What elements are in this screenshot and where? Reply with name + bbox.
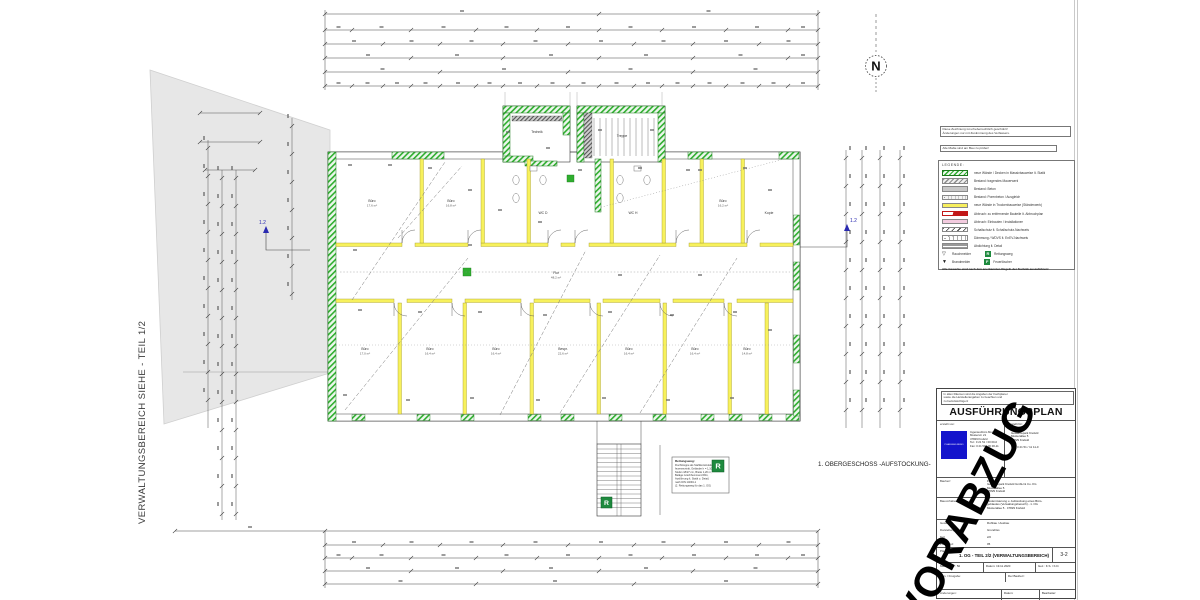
legend-row: Bestand: Beton	[942, 185, 1074, 193]
check-dimensions-note: Alle Maße sind am Bau zu prüfen!	[940, 145, 1057, 152]
legend-symbols-row: ▽ Rauchmelder RRettungsweg	[942, 250, 1074, 258]
svg-text:14,8 m²: 14,8 m²	[742, 351, 752, 355]
legend-row: Schallschutz lt. Schallschutz-Nachweis	[942, 226, 1074, 234]
legend-swatch-black-hatch	[942, 227, 968, 233]
drawing-sheet: Rettungsweg: Fluchttreppe als Stahlkonst…	[0, 0, 1200, 600]
dimension-strip-top	[323, 10, 820, 90]
left-area-note: VERWALTUNGSBEREICH SIEHE - TEIL 1/2	[137, 321, 148, 524]
svg-text:feuerverzinkt, Geländer h = 1,: feuerverzinkt, Geländer h = 1,10 m,	[675, 466, 716, 470]
interior-partitions	[336, 159, 793, 414]
svg-text:Büro: Büro	[447, 199, 454, 203]
svg-text:Büro: Büro	[625, 347, 632, 351]
svg-text:Büro: Büro	[492, 347, 499, 351]
floor-label: 1. OBERGESCHOSS -AUFSTOCKUNG-	[818, 461, 931, 468]
section-marker-right-label: 1.2	[850, 218, 857, 224]
legend-row: Bestand: Porenbeton / Ausgleich	[942, 193, 1074, 201]
svg-text:Fluchttreppe als Stahlkonstruk: Fluchttreppe als Stahlkonstruktion,	[675, 463, 715, 467]
legend-title: LEGENDE:	[942, 163, 1074, 167]
svg-text:WC H: WC H	[628, 211, 638, 215]
plan-number: 3-2	[1052, 548, 1075, 562]
svg-text:WC D: WC D	[538, 211, 548, 215]
legend-row: Abbruch: zu entfernende Bauteile lt. Abb…	[942, 209, 1074, 217]
svg-text:Kopie: Kopie	[765, 211, 774, 215]
svg-text:Beläge rutschhemmend R11,: Beläge rutschhemmend R11,	[675, 473, 709, 477]
fire-detector-icon: ▼	[942, 259, 952, 265]
legend-swatch-gray	[942, 186, 968, 192]
svg-text:R: R	[715, 462, 721, 471]
legend-row: neue Wände in Trockenbauweise (Ständerwe…	[942, 201, 1074, 209]
svg-text:17,0 m²: 17,0 m²	[360, 351, 370, 355]
dimension-strip-bottom	[173, 526, 820, 588]
svg-text:22,6 m²: 22,6 m²	[558, 351, 568, 355]
north-arrow: N	[866, 14, 887, 92]
svg-text:(2. Rettungsweg für das 1. OG): (2. Rettungsweg für das 1. OG)	[675, 483, 711, 487]
svg-text:16,8 m²: 16,8 m²	[446, 203, 456, 207]
plan-title: 1. OG - TEIL 2/2 (VERWALTUNGSBEREICH)	[959, 553, 1049, 559]
svg-text:Büro: Büro	[361, 347, 368, 351]
legend-footer: Alle Gewerke sind nach den anerkannten R…	[942, 268, 1074, 272]
tiny-dimension-text	[343, 129, 772, 400]
svg-text:R: R	[604, 500, 609, 507]
copyright-note-line2: Änderungen nur mit Zustimmung des Verfas…	[943, 132, 1069, 136]
legend-swatch-red	[942, 211, 968, 217]
smoke-detector-icon: ▽	[942, 251, 952, 257]
north-letter: N	[871, 59, 880, 74]
copyright-note: Diese Zeichnung ist urheberrechtlich ges…	[940, 126, 1071, 137]
svg-text:Büro: Büro	[426, 347, 433, 351]
svg-text:17,6 m²: 17,6 m²	[367, 203, 377, 207]
check-dimensions-line: Alle Maße sind am Bau zu prüfen!	[943, 147, 1055, 151]
svg-text:16,4 m²: 16,4 m²	[491, 351, 501, 355]
svg-text:Büro: Büro	[743, 347, 750, 351]
section-marker-left-label: 1.2	[259, 220, 266, 226]
note-box-title: Rettungsweg:	[675, 459, 695, 463]
svg-text:16,2 m²: 16,2 m²	[718, 203, 728, 207]
svg-text:Büro: Büro	[719, 199, 726, 203]
legend-swatch-stipple	[942, 195, 968, 201]
legend-swatch-lines	[942, 243, 968, 249]
architect-logo: PLANUNGS BÜRO	[941, 431, 967, 459]
changes-row: Änderungen: Datum: Bearbeiter:	[937, 589, 1075, 600]
legend-swatch-pink	[942, 219, 968, 225]
dimension-chain-right	[844, 146, 905, 428]
legend-row: Abdichtung lt. Detail	[942, 242, 1074, 250]
legend-row: neue Wände / Decken in Massivbauweise lt…	[942, 169, 1074, 177]
svg-text:16,4 m²: 16,4 m²	[624, 351, 634, 355]
svg-text:Stufen 18/27 cm, Breite 1,20 m: Stufen 18/27 cm, Breite 1,20 m,	[675, 470, 712, 474]
svg-text:Büro: Büro	[691, 347, 698, 351]
legend-row: Dämmung / WDVS lt. EnEV-Nachweis	[942, 234, 1074, 242]
fire-extinguisher-icon: F	[984, 259, 990, 265]
svg-text:Treppe: Treppe	[617, 134, 628, 138]
svg-text:nach DIN 14094-1: nach DIN 14094-1	[675, 480, 697, 484]
legend-row: Abbruch: Einbauten / Installationen	[942, 218, 1074, 226]
svg-text:Ausführung lt. Statik u. Detai: Ausführung lt. Statik u. Detail,	[675, 477, 709, 481]
grayed-area-teil1	[150, 70, 330, 424]
svg-text:16,4 m²: 16,4 m²	[425, 351, 435, 355]
sheet-right-border-2	[1077, 0, 1078, 600]
svg-text:Bespr.: Bespr.	[558, 347, 568, 351]
legend-swatch-green-hatch	[942, 170, 968, 176]
svg-text:Technik: Technik	[531, 130, 543, 134]
legend-symbols-row: ▼ Brandmelder FFeuerlöscher	[942, 258, 1074, 266]
legend-swatch-yellow	[942, 203, 968, 209]
legend-swatch-gray-hatch	[942, 178, 968, 184]
svg-text:Flur: Flur	[553, 271, 560, 275]
legend-row: Bestand: tragendes Mauerwerk	[942, 177, 1074, 185]
legend: LEGENDE: neue Wände / Decken in Massivba…	[938, 160, 1075, 270]
svg-text:Büro: Büro	[368, 199, 375, 203]
svg-text:48,2 m²: 48,2 m²	[551, 275, 561, 279]
legend-swatch-dots	[942, 235, 968, 241]
svg-text:16,4 m²: 16,4 m²	[690, 351, 700, 355]
escape-route-icon: R	[985, 251, 991, 257]
